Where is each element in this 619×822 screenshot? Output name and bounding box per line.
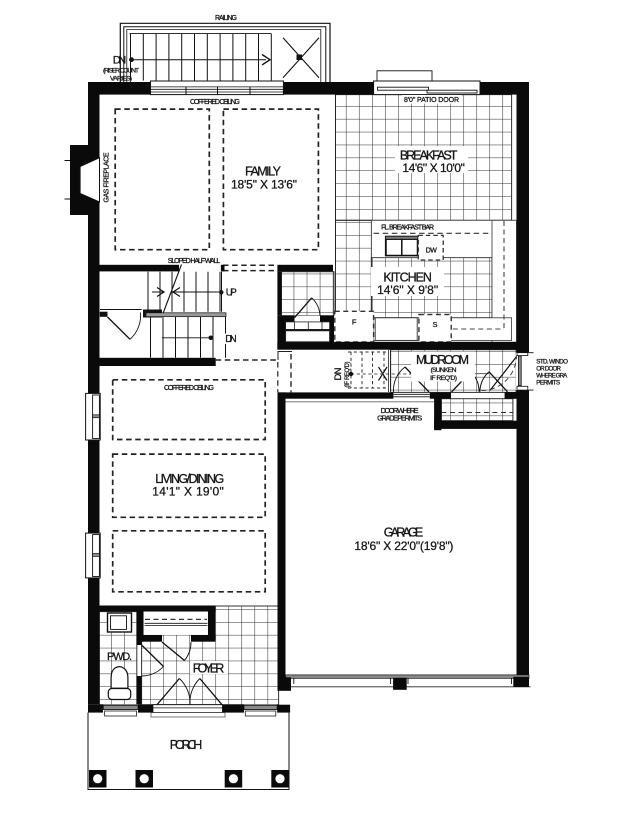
- svg-text:FAMILY: FAMILY: [245, 165, 282, 179]
- svg-text:GARAGE: GARAGE: [384, 526, 424, 540]
- svg-text:DN: DN: [333, 367, 344, 380]
- svg-text:RAILING: RAILING: [215, 15, 237, 22]
- svg-text:FL. BREAKFAST BAR: FL. BREAKFAST BAR: [381, 225, 434, 232]
- svg-text:DN: DN: [225, 334, 237, 345]
- svg-text:PORCH: PORCH: [170, 738, 203, 752]
- svg-text:14'6" X 9'8": 14'6" X 9'8": [377, 283, 438, 297]
- svg-text:IF REQ'D): IF REQ'D): [430, 375, 457, 382]
- svg-text:DW: DW: [426, 248, 437, 255]
- svg-text:8'0" PATIO DOOR: 8'0" PATIO DOOR: [404, 97, 459, 104]
- svg-text:FOYER: FOYER: [193, 661, 225, 675]
- svg-text:14'6" X 10'0": 14'6" X 10'0": [402, 161, 465, 175]
- svg-text:VARIES): VARIES): [110, 76, 132, 83]
- svg-text:18'6" X 22'0"(19'8"): 18'6" X 22'0"(19'8"): [354, 539, 453, 553]
- svg-text:SLOPED HALF WALL: SLOPED HALF WALL: [168, 258, 221, 265]
- svg-text:COFFERED CEILING: COFFERED CEILING: [190, 99, 240, 106]
- svg-text:PWD.: PWD.: [107, 651, 132, 663]
- svg-text:S: S: [432, 320, 437, 329]
- svg-text:F: F: [352, 318, 357, 327]
- svg-text:(SUNKEN: (SUNKEN: [431, 367, 457, 374]
- svg-text:COFFERED CEILING: COFFERED CEILING: [164, 385, 214, 392]
- svg-text:DN: DN: [113, 55, 127, 67]
- svg-text:OR DOOR: OR DOOR: [536, 365, 561, 372]
- svg-text:14'1" X 19'0": 14'1" X 19'0": [152, 484, 224, 498]
- svg-text:PERMITS: PERMITS: [536, 379, 560, 386]
- svg-text:(RISER COUNT: (RISER COUNT: [103, 68, 139, 75]
- svg-text:18'5" X 13'6": 18'5" X 13'6": [231, 178, 297, 192]
- svg-text:MUDROOM: MUDROOM: [416, 353, 469, 367]
- svg-text:GRADE PERMITS: GRADE PERMITS: [377, 413, 422, 422]
- svg-text:UP: UP: [226, 288, 237, 299]
- svg-text:GAS FIREPLACE: GAS FIREPLACE: [104, 152, 111, 202]
- svg-text:(IF REQ'D): (IF REQ'D): [345, 362, 351, 388]
